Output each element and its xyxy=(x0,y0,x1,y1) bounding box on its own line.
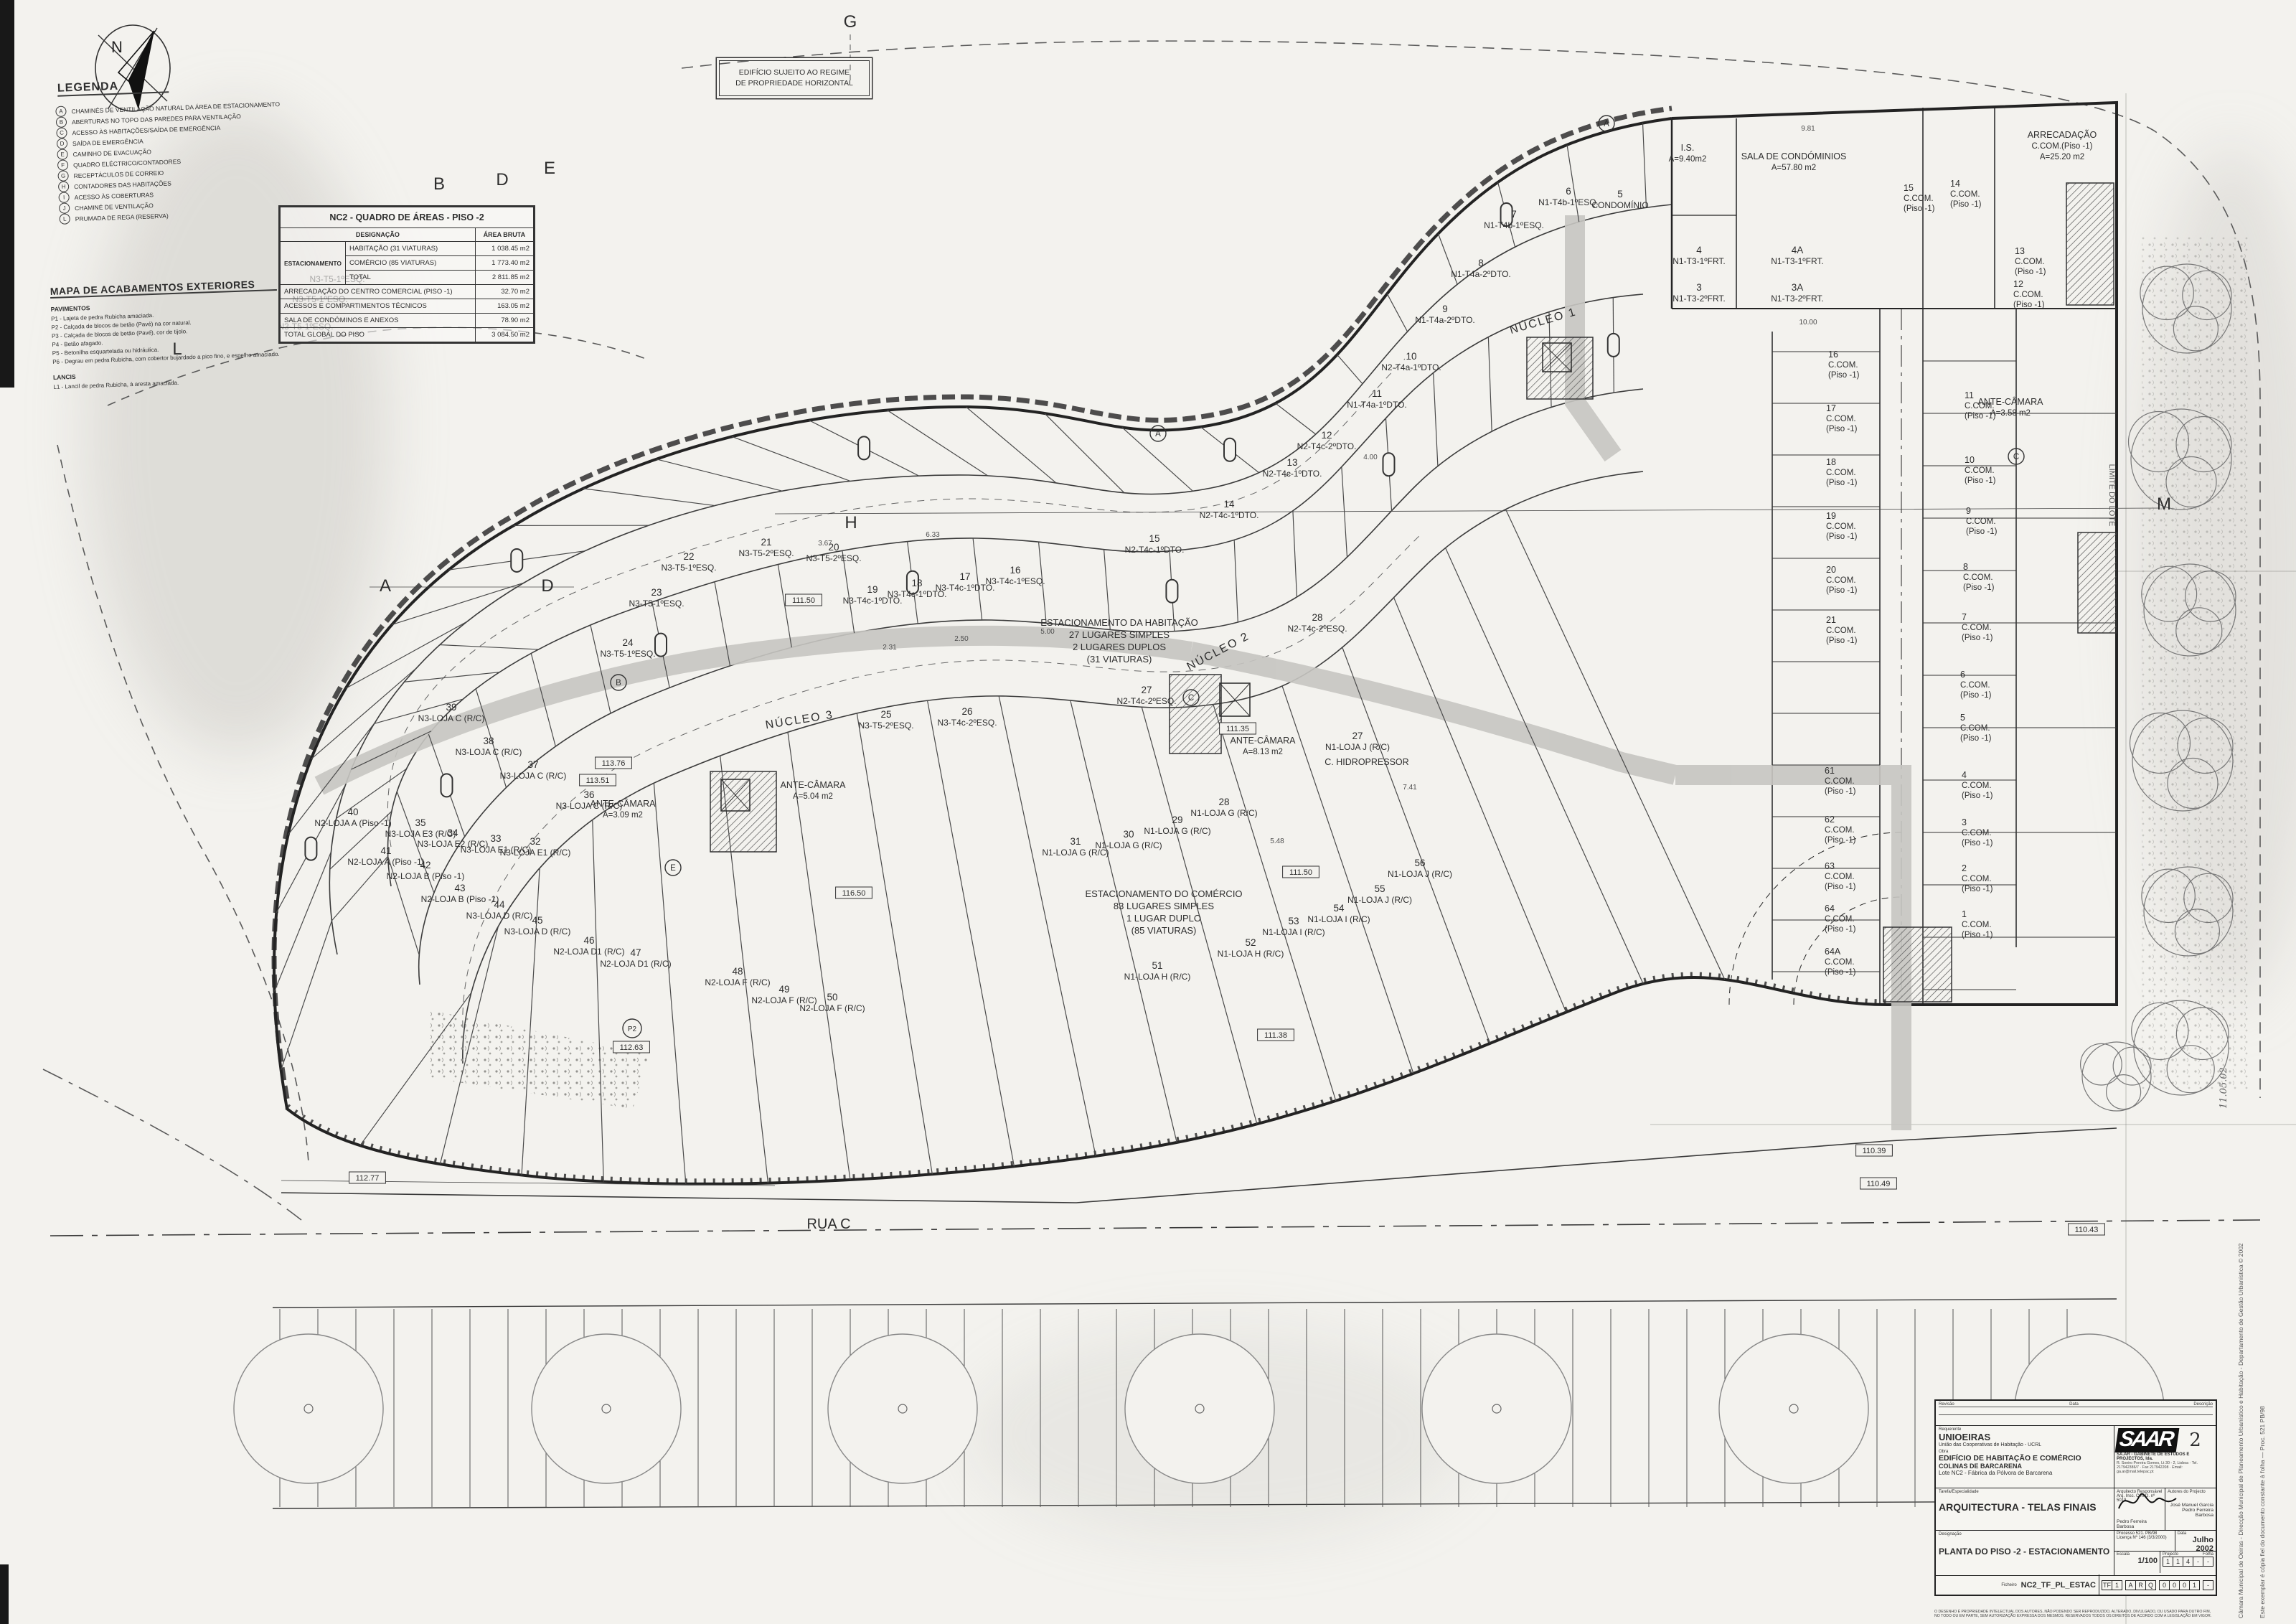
legend-ref-letter: A xyxy=(1604,120,1609,128)
dimension-value: 2.31 xyxy=(883,644,897,652)
grid-letter: M xyxy=(2157,494,2171,514)
space-label: N2-LOJA D1 (R/C) xyxy=(600,959,671,969)
stair-flight xyxy=(2078,532,2117,633)
legend-key-icon: E xyxy=(57,149,68,160)
space-number: 48 xyxy=(732,966,743,977)
room-label: A=5.04 m2 xyxy=(793,792,833,801)
elevation-value: 110.49 xyxy=(1867,1180,1891,1188)
margin-copy-note: Este exemplar é cópia fiel do documento … xyxy=(2259,1406,2266,1618)
storage-number: 1 xyxy=(1962,909,1967,919)
space-label: N2-LOJA B (Piso -1) xyxy=(387,871,465,881)
space-number: 33 xyxy=(490,833,501,844)
specialty-box: A R Q xyxy=(2125,1580,2156,1590)
space-label: N1-T3-2ºFRT. xyxy=(1672,294,1726,304)
storage-label: (Piso -1) xyxy=(1962,931,1993,939)
parking-count-note: 27 LUGARES SIMPLES xyxy=(1069,629,1170,640)
street-tree xyxy=(1422,1334,1571,1483)
project-line: Lote NC2 - Fábrica da Pólvora de Barcare… xyxy=(1939,1470,2111,1476)
space-number: 43 xyxy=(454,883,465,893)
space-number: 31 xyxy=(1070,836,1081,847)
space-number: 3A xyxy=(1792,282,1804,293)
legend-ref-letter: B xyxy=(616,679,621,687)
space-number: 30 xyxy=(1123,829,1134,840)
notice-line: EDIFÍCIO SUJEITO AO REGIME xyxy=(723,67,866,78)
title-block: Revisão Data Descrição Requerente UNIOEI… xyxy=(1934,1399,2217,1596)
space-number: 47 xyxy=(630,947,641,958)
storage-label: C.COM. xyxy=(1965,466,1995,475)
storage-number: 21 xyxy=(1826,615,1836,625)
parking-count-note: (31 VIATURAS) xyxy=(1087,654,1152,665)
space-label: N3-T5-2ºESQ. xyxy=(738,548,794,558)
parking-divider xyxy=(1234,540,1238,622)
grid-letter: H xyxy=(844,513,857,532)
walkway-shading xyxy=(319,215,1901,1130)
stair-flight xyxy=(1170,675,1221,754)
space-number: 4 xyxy=(1696,245,1702,255)
room-label: ANTE-CÂMARA xyxy=(781,779,847,790)
space-label: N1-LOJA J (R/C) xyxy=(1388,869,1452,879)
room-label: A=3.09 m2 xyxy=(603,811,643,820)
legend-ref-letter: C xyxy=(2013,453,2019,461)
storage-label: (Piso -1) xyxy=(1826,637,1858,645)
parking-divider xyxy=(593,820,604,1181)
parking-count-note: (85 VIATURAS) xyxy=(1131,925,1197,936)
space-label: N1-T3-1ºFRT. xyxy=(1771,256,1824,266)
parking-count-note: 1 LUGAR DUPLO xyxy=(1126,913,1201,924)
space-number: 42 xyxy=(420,860,430,870)
space-number: 10 xyxy=(1406,351,1416,362)
col-header-area: ÁREA BRUTA xyxy=(475,228,533,242)
elevation-badge: 113.51 xyxy=(580,774,616,786)
space-number: 22 xyxy=(683,551,694,562)
legend: LEGENDA ACHAMINÉS DE VENTILAÇÃO NATURAL … xyxy=(57,80,301,220)
elevation-badge: 112.77 xyxy=(349,1172,386,1183)
table-cell: 1 773.40 m2 xyxy=(475,256,533,271)
space-label: N3-T5-2ºESQ. xyxy=(858,721,913,731)
space-label: N3-LOJA D (R/C) xyxy=(466,911,533,921)
storage-label: C.COM. xyxy=(1963,573,1993,582)
space-label: N2-T4c-1ºDTO. xyxy=(1200,510,1259,520)
space-label: N2-T4c-2ºDTO. xyxy=(1297,441,1357,451)
stair-flight xyxy=(1883,927,1952,1002)
table-cell: TOTAL xyxy=(346,271,476,285)
storage-number: 18 xyxy=(1826,457,1836,467)
storage-label: C.COM. xyxy=(1826,522,1856,531)
project-line: EDIFÍCIO DE HABITAÇÃO E COMÉRCIO xyxy=(1939,1454,2111,1463)
legend-title: LEGENDA xyxy=(57,78,169,96)
vent-shaft-icon xyxy=(1224,438,1236,461)
drawing-number-box: 0 0 0 1 xyxy=(2159,1580,2200,1590)
drawing-sheet: N xyxy=(0,0,2296,1624)
space-number: 8 xyxy=(1478,258,1484,268)
space-label: N2-T4c-2ºESQ. xyxy=(1287,624,1347,634)
storage-label: C.COM. xyxy=(1962,829,1992,837)
elevation-badge: 111.35 xyxy=(1220,723,1256,734)
space-number: 32 xyxy=(530,836,540,847)
legend-key-icon: D xyxy=(57,138,68,149)
room-label: I.S. xyxy=(1681,143,1695,153)
storage-label: C.COM. xyxy=(1825,915,1855,924)
parking-divider xyxy=(1337,355,1363,384)
space-label: N2-LOJA A (Piso -1) xyxy=(314,818,391,828)
elevation-badge: 110.49 xyxy=(1860,1178,1897,1189)
space-label: N3-T4c-1ºDTO. xyxy=(843,596,903,606)
room-label: A=3.58 m2 xyxy=(1990,409,2031,418)
digit: TF xyxy=(2102,1581,2112,1590)
field-label: Designação xyxy=(1939,1532,2111,1536)
storage-label: (Piso -1) xyxy=(1962,885,1993,893)
space-label: N2-LOJA F (R/C) xyxy=(705,977,770,987)
room-label: A=8.13 m2 xyxy=(1243,748,1283,756)
storage-label: (Piso -1) xyxy=(1826,425,1858,433)
space-number: 50 xyxy=(827,992,837,1003)
file-name: NC2_TF_PL_ESTAC xyxy=(2021,1581,2096,1590)
storage-label: C.COM. xyxy=(1825,826,1855,835)
parking-divider xyxy=(654,783,685,1184)
project-line: COLINAS DE BARCARENA xyxy=(1939,1463,2111,1470)
vent-shaft-icon xyxy=(655,634,667,657)
dimension-value: 9.81 xyxy=(1801,125,1815,133)
space-label: N1-T4a-1ºDTO. xyxy=(1347,400,1407,410)
digit: Q xyxy=(2145,1581,2155,1590)
group-estacionamento: ESTACIONAMENTO xyxy=(281,242,346,285)
storage-label: (Piso -1) xyxy=(2015,268,2046,276)
revision-col-label: Revisão xyxy=(1939,1402,1954,1407)
horizontal-property-notice: EDIFÍCIO SUJEITO AO REGIME DE PROPRIEDAD… xyxy=(719,60,870,96)
digit: 0 xyxy=(2179,1581,2189,1590)
parking-divider xyxy=(1434,373,1438,466)
space-label: N1-LOJA G (R/C) xyxy=(1042,848,1109,858)
space-number: 29 xyxy=(1172,815,1182,825)
space-number: 27 xyxy=(1352,731,1363,741)
space-number: 44 xyxy=(494,899,505,910)
legend-key-icon: B xyxy=(56,116,67,128)
storage-number: 12 xyxy=(2013,279,2023,289)
storage-label: C.COM. xyxy=(1826,576,1856,585)
legend-ref-icon: A xyxy=(1150,426,1166,441)
elevation-value: 112.77 xyxy=(356,1174,380,1183)
space-label: N3-LOJA C (R/C) xyxy=(456,747,522,757)
room-label: ANTE-CÂMARA xyxy=(1231,735,1297,746)
drawing-title: PLANTA DO PISO -2 - ESTACIONAMENTO xyxy=(1939,1546,2111,1557)
space-number: 15 xyxy=(1149,533,1159,544)
elevation-value: 113.51 xyxy=(586,776,610,785)
dimension-value: 2.50 xyxy=(954,635,969,643)
storage-number: 7 xyxy=(1962,612,1967,622)
dimension-value: 3.67 xyxy=(818,540,832,548)
table-cell: 32.70 m2 xyxy=(475,285,533,299)
elevation-badge: 111.50 xyxy=(1283,866,1319,878)
revision-row xyxy=(1939,1407,2213,1414)
dimension-value: 4.00 xyxy=(1363,454,1378,461)
legend-key-icon: L xyxy=(59,213,70,225)
table-cell: 163.05 m2 xyxy=(475,299,533,314)
storage-number: 16 xyxy=(1828,349,1838,360)
storage-number: 63 xyxy=(1825,861,1835,871)
storage-label: (Piso -1) xyxy=(1826,532,1858,541)
storage-number: 62 xyxy=(1825,815,1835,825)
legend-key-icon: C xyxy=(56,127,67,139)
areas-table-title: NC2 - QUADRO DE ÁREAS - PISO -2 xyxy=(281,207,534,228)
storage-label: (Piso -1) xyxy=(1960,691,1992,700)
space-number: 35 xyxy=(415,817,425,828)
space-number: 52 xyxy=(1245,937,1256,948)
storage-label: (Piso -1) xyxy=(1828,371,1860,380)
table-cell: 3 084.50 m2 xyxy=(475,328,533,342)
parking-divider xyxy=(1394,598,1566,1013)
storage-label: C.COM. xyxy=(1962,782,1992,790)
parking-divider xyxy=(973,538,982,620)
storage-label: C.COM. xyxy=(1966,517,1996,526)
vent-shaft-icon xyxy=(441,774,453,797)
space-number: 19 xyxy=(867,584,878,595)
parking-divider xyxy=(1643,123,1647,208)
dimension-value: 5.00 xyxy=(1040,628,1055,636)
vent-shaft-icon xyxy=(1166,580,1177,603)
phase-box: TF1 xyxy=(2102,1580,2122,1590)
storage-label: C.COM. xyxy=(1960,724,1990,733)
space-number: 40 xyxy=(347,807,358,817)
space-label: N1-T4b-1ºESQ. xyxy=(1484,220,1544,230)
sheet-number: 2 xyxy=(2189,1430,2201,1451)
parking-divider xyxy=(440,645,538,649)
revision-box: - xyxy=(2203,1580,2213,1590)
project-code: 1 1 4 - - xyxy=(2163,1557,2213,1567)
storage-label: C.COM. xyxy=(1826,626,1856,635)
space-label: N1-LOJA H (R/C) xyxy=(1124,972,1191,982)
legend-key-icon: G xyxy=(57,170,69,182)
digit: - xyxy=(2203,1557,2213,1566)
space-number: 41 xyxy=(380,845,391,856)
space-number: 28 xyxy=(1312,612,1322,623)
space-number: 5 xyxy=(1617,189,1623,200)
parking-divider xyxy=(281,921,332,1070)
dimension-value: 5.48 xyxy=(1270,837,1284,845)
digit: 1 xyxy=(2189,1581,2199,1590)
digit: 1 xyxy=(2112,1581,2122,1590)
architect-name: Pedro Ferreira Barbosa xyxy=(2117,1519,2165,1529)
elevation-badge: 111.50 xyxy=(786,594,822,606)
storage-number: 8 xyxy=(1963,562,1968,572)
elevation-value: 113.76 xyxy=(602,759,626,768)
elevation-value: 112.63 xyxy=(620,1043,644,1052)
storage-number: 9 xyxy=(1966,506,1971,516)
storage-label: (Piso -1) xyxy=(1965,477,1996,485)
storage-number: 14 xyxy=(1950,179,1960,189)
parking-divider xyxy=(966,407,1056,483)
space-label: N1-LOJA I (R/C) xyxy=(1307,914,1370,924)
storage-number: 61 xyxy=(1825,766,1835,776)
table-cell: COMÉRCIO (85 VIATURAS) xyxy=(346,256,476,271)
space-number: 13 xyxy=(1286,457,1297,468)
digit: 0 xyxy=(2169,1581,2179,1590)
storage-label: (Piso -1) xyxy=(1904,205,1935,213)
space-number: 28 xyxy=(1218,797,1229,807)
parking-count-note: ESTACIONAMENTO DA HABITAÇÃO xyxy=(1040,617,1198,628)
dimension-value: 6.33 xyxy=(926,531,940,539)
digit: 1 xyxy=(2163,1557,2173,1566)
legend-ref-letter: A xyxy=(1155,430,1161,438)
table-cell: 78.90 m2 xyxy=(475,314,533,328)
areas-table: NC2 - QUADRO DE ÁREAS - PISO -2 DESIGNAÇ… xyxy=(278,205,535,344)
storage-label: (Piso -1) xyxy=(1963,583,1995,592)
storage-number: 2 xyxy=(1962,863,1967,873)
storage-label: (Piso -1) xyxy=(1960,734,1992,743)
legend-ref-letter: C xyxy=(1188,694,1194,703)
space-label: N3-T4c-2ºESQ. xyxy=(937,718,997,728)
legend-ref-letter: E xyxy=(670,864,676,873)
storage-label: C.COM. xyxy=(1825,958,1855,967)
handwritten-date: 11.05.02 xyxy=(2219,1067,2229,1109)
space-number: 53 xyxy=(1288,916,1299,926)
discipline-title: ARQUITECTURA - TELAS FINAIS xyxy=(1939,1501,2111,1513)
space-label: N1-LOJA G (R/C) xyxy=(1190,808,1257,818)
room-label: A=9.40m2 xyxy=(1669,155,1707,164)
space-number: 14 xyxy=(1223,499,1235,510)
space-number: 38 xyxy=(483,736,494,746)
space-number: 27 xyxy=(1141,685,1152,695)
digit: 1 xyxy=(2173,1557,2183,1566)
space-label: N3-T5-1ºESQ. xyxy=(629,599,684,609)
elevation-value: 111.38 xyxy=(1264,1031,1287,1040)
space-label: N3-LOJA E2 (R/C) xyxy=(418,839,489,849)
date-value: Julho 2002 xyxy=(2178,1536,2213,1553)
storage-number: 64 xyxy=(1825,903,1835,914)
vent-shaft-icon xyxy=(305,837,316,860)
space-number: 12 xyxy=(1321,430,1332,441)
parking-count-note: 2 LUGARES DUPLOS xyxy=(1073,642,1166,652)
dimension-value: 7.41 xyxy=(1403,784,1417,792)
space-number: 3 xyxy=(1696,282,1702,293)
digit: - xyxy=(2203,1581,2213,1590)
process-line: Licença Nº 146 (3/3/2000) xyxy=(2117,1536,2173,1540)
elevation-value: 110.39 xyxy=(1863,1147,1886,1155)
street-name: RUA C xyxy=(806,1216,850,1232)
storage-number: 13 xyxy=(2015,246,2025,256)
grid-letter: B xyxy=(433,174,445,194)
table-cell: HABITAÇÃO (31 VIATURAS) xyxy=(346,242,476,256)
revision-row xyxy=(1939,1414,2213,1422)
space-label: N1-LOJA H (R/C) xyxy=(1218,949,1284,959)
space-number: 17 xyxy=(959,571,970,582)
grid-letter: G xyxy=(844,12,857,32)
digit: 0 xyxy=(2160,1581,2169,1590)
storage-label: C.COM. xyxy=(1962,921,1992,929)
svg-text:N: N xyxy=(111,38,123,56)
signature xyxy=(2117,1493,2178,1514)
storage-label: C.COM. xyxy=(1950,190,1980,199)
room-label: ANTE-CÂMARA xyxy=(1978,396,2044,407)
elevation-badge: 110.43 xyxy=(2069,1224,2105,1235)
storage-label: (Piso -1) xyxy=(1825,883,1856,891)
vent-shaft-icon xyxy=(1383,453,1394,476)
space-number: 49 xyxy=(778,984,789,995)
parking-count-note: 83 LUGARES SIMPLES xyxy=(1114,901,1214,911)
room-label: SALA DE CONDÓMINIOS xyxy=(1741,151,1847,161)
storage-label: C.COM. xyxy=(1826,415,1856,423)
digit: R xyxy=(2135,1581,2145,1590)
legend-ref-icon: P2 xyxy=(623,1019,641,1038)
space-label: CONDOMÍNIO xyxy=(1591,200,1648,210)
space-label: N3-LOJA C (R/C) xyxy=(418,713,485,723)
space-label: N2-LOJA D1 (R/C) xyxy=(553,947,624,957)
space-number: 46 xyxy=(583,935,594,946)
vegetation xyxy=(429,237,2249,1109)
storage-label: C.COM. xyxy=(1962,875,1992,883)
space-label: N2-LOJA B (Piso -1) xyxy=(421,894,499,904)
space-label: N2-LOJA A (Piso -1) xyxy=(347,857,424,867)
core-label: NÚCLEO 3 xyxy=(764,708,834,732)
parking-divider xyxy=(1213,705,1336,1101)
field-label: Tarefa/Especialidade xyxy=(1939,1490,2111,1494)
storage-label: (Piso -1) xyxy=(1966,527,1998,536)
space-number: 9 xyxy=(1442,304,1448,314)
space-number: 16 xyxy=(1010,565,1020,576)
space-number: 23 xyxy=(651,587,662,598)
grid-letter: E xyxy=(544,159,555,178)
copyright-microprint: O DESENHO É PROPRIEDADE INTELECTUAL DOS … xyxy=(1934,1610,2214,1618)
legend-ref-letter: P2 xyxy=(628,1025,637,1033)
parking-count-note: ESTACIONAMENTO DO COMÉRCIO xyxy=(1085,888,1242,899)
space-label: N1-T3-1ºFRT. xyxy=(1672,256,1726,266)
legend-key-icon: F xyxy=(57,159,69,171)
field-label: Ficheiro xyxy=(2001,1583,2016,1587)
table-cell: TOTAL GLOBAL DO PISO xyxy=(281,328,476,342)
storage-number: 4 xyxy=(1962,770,1967,780)
vent-shaft-icon xyxy=(1608,334,1619,357)
parking-divider xyxy=(1293,511,1297,597)
space-number: 54 xyxy=(1333,903,1345,914)
space-label: N3-LOJA E3 (R/C) xyxy=(385,829,456,839)
space-number: 45 xyxy=(532,915,542,926)
storage-label: C.COM. xyxy=(1826,469,1856,477)
storage-label: (Piso -1) xyxy=(1826,479,1858,487)
col-header-designacao: DESIGNAÇÃO xyxy=(281,228,476,242)
digit: A xyxy=(2126,1581,2135,1590)
storage-label: (Piso -1) xyxy=(1825,836,1856,845)
storage-label: (Piso -1) xyxy=(1950,200,1982,209)
storage-label: (Piso -1) xyxy=(2013,301,2045,309)
space-label: N3-LOJA D (R/C) xyxy=(504,926,571,937)
margin-stamp-text: Câmara Municipal de Oeiras - Direcção Mu… xyxy=(2237,1243,2244,1618)
elevation-badge: 110.39 xyxy=(1856,1145,1893,1156)
space-label: N2-LOJA F (R/C) xyxy=(799,1003,865,1013)
storage-label: (Piso -1) xyxy=(1825,787,1856,796)
client-name: UNIOEIRAS xyxy=(1939,1432,2111,1442)
storage-number: 10 xyxy=(1965,455,1975,465)
room-label: A=57.80 m2 xyxy=(1772,164,1816,172)
legend-key-icon: I xyxy=(58,192,70,203)
storage-number: 17 xyxy=(1826,403,1836,413)
storage-label: C.COM. xyxy=(1904,194,1934,203)
grid-letter: D xyxy=(541,576,553,596)
grid-letter: D xyxy=(496,170,508,189)
space-label: N3-T5-1ºESQ. xyxy=(661,563,716,573)
storage-number: 20 xyxy=(1826,565,1836,575)
space-number: 51 xyxy=(1152,960,1162,971)
storage-label: C.COM. xyxy=(1960,681,1990,690)
firm-info: R. Soeiro Pereira Gomes, Lt 30 - 2, Lisb… xyxy=(2117,1461,2213,1474)
parking-divider xyxy=(928,700,1015,1166)
storage-number: 64A xyxy=(1825,947,1841,957)
storage-label: (Piso -1) xyxy=(1826,586,1858,595)
space-label: N1-T3-2ºFRT. xyxy=(1771,294,1824,304)
saar-logo: SAAR xyxy=(2115,1428,2180,1452)
street-tree xyxy=(828,1334,977,1483)
parking-divider xyxy=(999,696,1096,1156)
legend-key-icon: J xyxy=(59,202,70,214)
storage-label: C.COM. xyxy=(1828,361,1858,370)
